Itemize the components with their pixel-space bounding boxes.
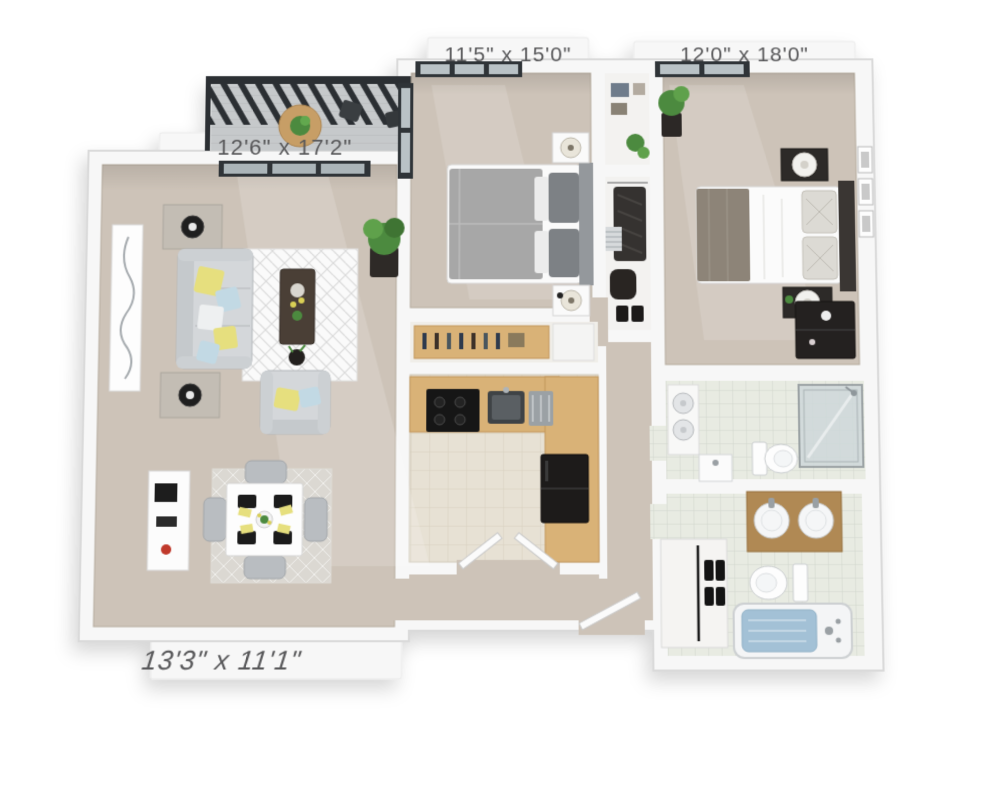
duffel-bag <box>610 269 637 299</box>
placemat <box>273 531 292 544</box>
pillow <box>534 177 548 221</box>
dining-chair <box>244 556 286 579</box>
balcony-railing-post-left <box>205 76 211 151</box>
bottle <box>435 333 439 349</box>
dresser <box>795 302 855 359</box>
shoe-closet <box>661 539 728 647</box>
nightstand-dark <box>781 149 828 181</box>
bottle <box>496 333 500 349</box>
balcony-plant <box>290 116 310 136</box>
coffee-table <box>280 269 315 344</box>
dining-table <box>226 483 303 555</box>
closet-door-edge <box>698 545 699 641</box>
bathtub <box>734 604 853 658</box>
bed <box>447 163 594 286</box>
folded-linens <box>611 83 629 97</box>
shoes <box>631 306 643 322</box>
pantry-cabinet <box>553 324 594 361</box>
nightstand <box>553 133 589 163</box>
sofa <box>176 249 253 369</box>
shoes <box>616 306 628 322</box>
window-bedroom-1-side <box>398 83 414 179</box>
floor-plan-3d-wrapper: 11'5" x 15'0" 12'0" x 18'0" 12'6" x 17'2… <box>0 0 1000 800</box>
bottle <box>471 333 475 349</box>
armchair <box>260 371 330 434</box>
dining-area <box>147 461 332 583</box>
dining-chair <box>245 461 286 484</box>
floor-plan-rendering: 11'5" x 15'0" 12'0" x 18'0" 12'6" x 17'2… <box>0 0 1000 800</box>
wall-picture-frames <box>858 147 874 237</box>
bread-box <box>508 333 524 347</box>
bathroom-vanity <box>699 455 732 482</box>
console-table <box>147 471 190 570</box>
coffee-machine <box>155 483 178 502</box>
pillow <box>549 229 580 277</box>
balcony-railing-top <box>206 76 442 84</box>
toilet <box>752 442 798 475</box>
vanity-sink <box>798 503 834 538</box>
double-vanity <box>747 492 843 552</box>
side-table-lamp-top <box>163 205 223 249</box>
dining-chair <box>304 498 327 541</box>
throw-pillow-white <box>197 304 224 331</box>
storage-box <box>633 83 645 95</box>
shower <box>799 385 864 467</box>
side-table-lamp-bottom <box>160 373 220 418</box>
bottle <box>447 333 451 349</box>
doorway-living-vestibule <box>390 579 413 621</box>
dining-chair <box>203 498 226 541</box>
headboard <box>579 163 594 286</box>
dish-rack <box>529 391 554 426</box>
toilet <box>750 564 808 601</box>
faucet <box>768 498 774 508</box>
pantry-bar <box>414 324 594 361</box>
pillow <box>535 231 549 273</box>
dimension-label-living-room: 12'6" x 17'2" <box>217 135 352 160</box>
foot-blanket <box>696 189 750 282</box>
pillow <box>549 173 580 223</box>
shoes <box>716 560 726 581</box>
storage-box <box>611 103 627 115</box>
entry-vestibule-floor <box>409 574 599 620</box>
kitchen-sink <box>488 387 525 424</box>
doorway-bathroom-1 <box>650 426 669 461</box>
throw-pillow-yellow <box>273 387 301 411</box>
doorway-bathroom-2 <box>650 504 669 539</box>
dimension-label-bedroom-1: 11'5" x 15'0" <box>444 43 571 66</box>
dimension-label-bedroom-2: 12'0" x 18'0" <box>680 43 809 66</box>
dimension-label-dining-room: 13'3" x 11'1" <box>140 645 303 676</box>
placemat <box>238 495 257 508</box>
bottle <box>459 333 463 349</box>
faucet <box>813 498 819 508</box>
sliding-glass-door-living <box>219 161 371 177</box>
hallway-floor <box>606 342 653 620</box>
bottle <box>484 333 488 349</box>
shoes <box>716 587 725 606</box>
floor-plan-canvas: 11'5" x 15'0" 12'0" x 18'0" 12'6" x 17'2… <box>0 0 1000 800</box>
refrigerator <box>541 455 588 523</box>
bed <box>696 181 856 292</box>
stove <box>426 389 479 432</box>
bottle <box>422 333 426 349</box>
shoes <box>704 560 713 581</box>
wall-art <box>109 225 143 391</box>
headboard <box>838 181 856 292</box>
vanity-sink <box>754 503 789 538</box>
shoes <box>704 587 713 606</box>
nightstand <box>553 285 590 315</box>
linen-shelf <box>668 385 699 455</box>
